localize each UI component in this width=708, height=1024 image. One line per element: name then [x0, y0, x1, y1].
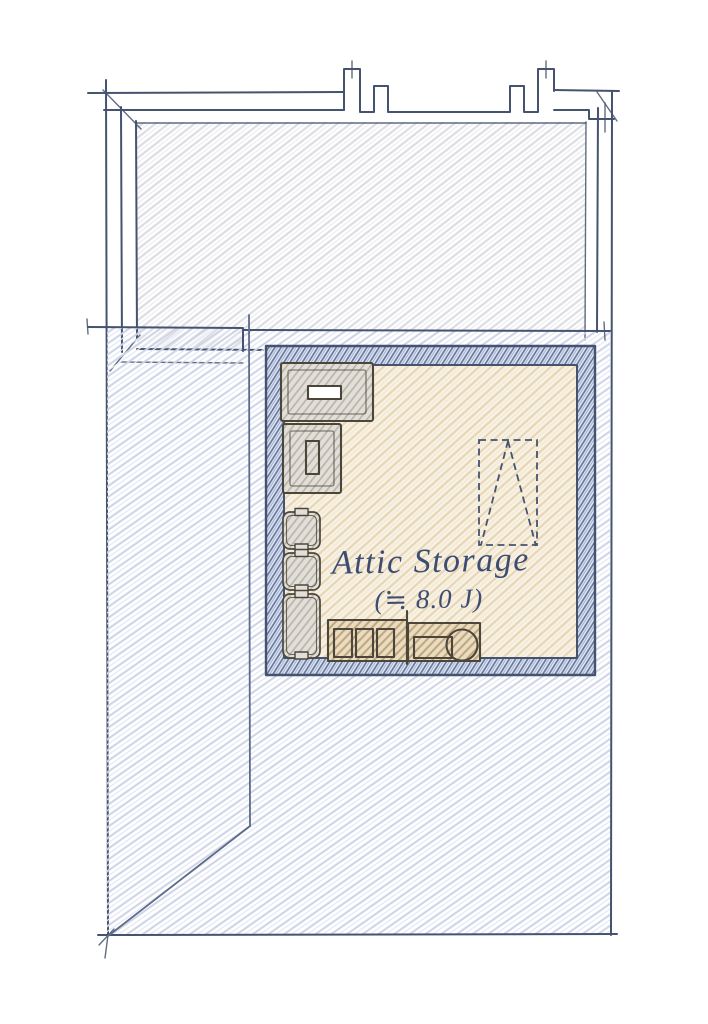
wide-cabinet: [281, 363, 373, 421]
room-area-label: (≒ 8.0 J): [374, 583, 483, 615]
shelf-unit: [328, 620, 407, 661]
room-label: Attic Storage: [330, 541, 531, 581]
tall-cabinet: [283, 424, 341, 493]
floor-plan-sketch-page: Attic Storage (≒ 8.0 J): [0, 0, 708, 1024]
upper-roof-hatch-fill: [137, 122, 586, 349]
equipment-unit: [408, 623, 480, 661]
wide-cabinet-handle: [308, 386, 341, 399]
storage-box-2: [283, 550, 320, 593]
storage-box-1: [283, 509, 320, 552]
storage-box-3: [283, 591, 320, 660]
floor-plan-sketch: Attic Storage (≒ 8.0 J): [0, 0, 708, 1024]
